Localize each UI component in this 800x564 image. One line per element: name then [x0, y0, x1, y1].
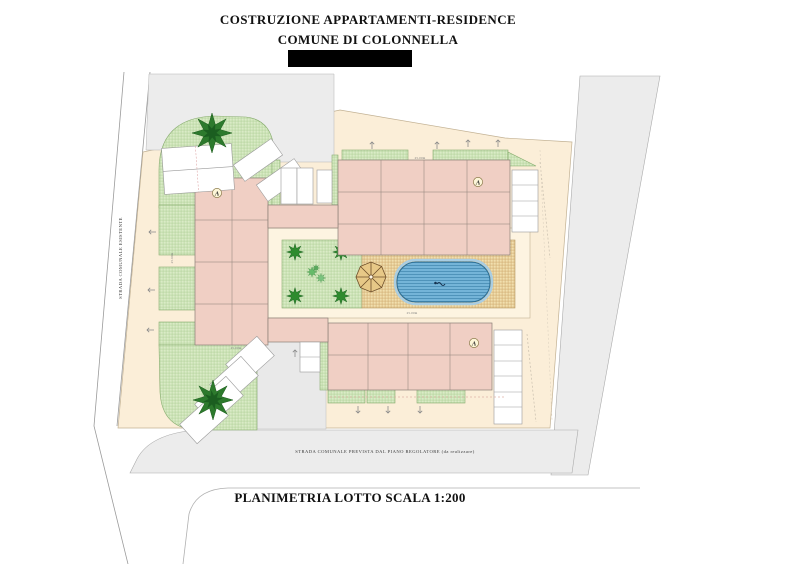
dim-bottom-left: 25.00m	[231, 346, 242, 350]
building-connector-bottom	[268, 318, 328, 342]
parking-mid-bottom	[300, 342, 320, 372]
green-strip-bottom-3	[417, 390, 465, 403]
green-strip-mid-2	[332, 155, 338, 205]
svg-text:A: A	[475, 179, 481, 186]
bottom-road-label: STRADA COMUNALE PREVISTA DAL PIANO REGOL…	[295, 449, 475, 454]
green-strip-bottom-1	[328, 390, 365, 403]
dim-left: 25.00m	[170, 252, 174, 263]
green-strip-bottom-2	[367, 390, 395, 403]
tree-icon-top-left	[192, 113, 232, 153]
parking-mid-top	[281, 168, 332, 204]
tree-icon-bottom-left	[193, 380, 233, 420]
dim-top: 25.00m	[415, 156, 426, 160]
building-connector-top	[268, 205, 338, 228]
parking-right-top	[512, 170, 538, 232]
svg-text:A: A	[214, 190, 220, 197]
green-strip-left-3	[159, 322, 195, 345]
green-strip-left-1	[159, 205, 195, 255]
gazebo-icon	[356, 262, 386, 292]
drawing-caption: PLANIMETRIA LOTTO SCALA 1:200	[160, 490, 540, 506]
dim-courtyard: 25.00m	[407, 311, 418, 315]
site-plan: STRADA COMUNALE ESISTENTE STRADA COMUNAL…	[0, 0, 800, 564]
right-road	[551, 76, 660, 475]
swimming-pool	[395, 260, 492, 304]
green-strip-bottom-4	[320, 342, 328, 390]
building-bottom	[328, 323, 492, 390]
block-badge-left: A	[212, 188, 221, 197]
green-strip-left-2	[159, 267, 195, 310]
left-road-label: STRADA COMUNALE ESISTENTE	[118, 217, 123, 299]
building-left	[195, 178, 268, 345]
svg-text:A: A	[471, 340, 477, 347]
parking-right-bottom	[494, 330, 522, 424]
block-badge-bottom: A	[469, 338, 478, 347]
drawing-sheet: COSTRUZIONE APPARTAMENTI-RESIDENCE COMUN…	[0, 0, 800, 564]
parking-top-left	[161, 144, 234, 195]
block-badge-top: A	[473, 177, 482, 186]
